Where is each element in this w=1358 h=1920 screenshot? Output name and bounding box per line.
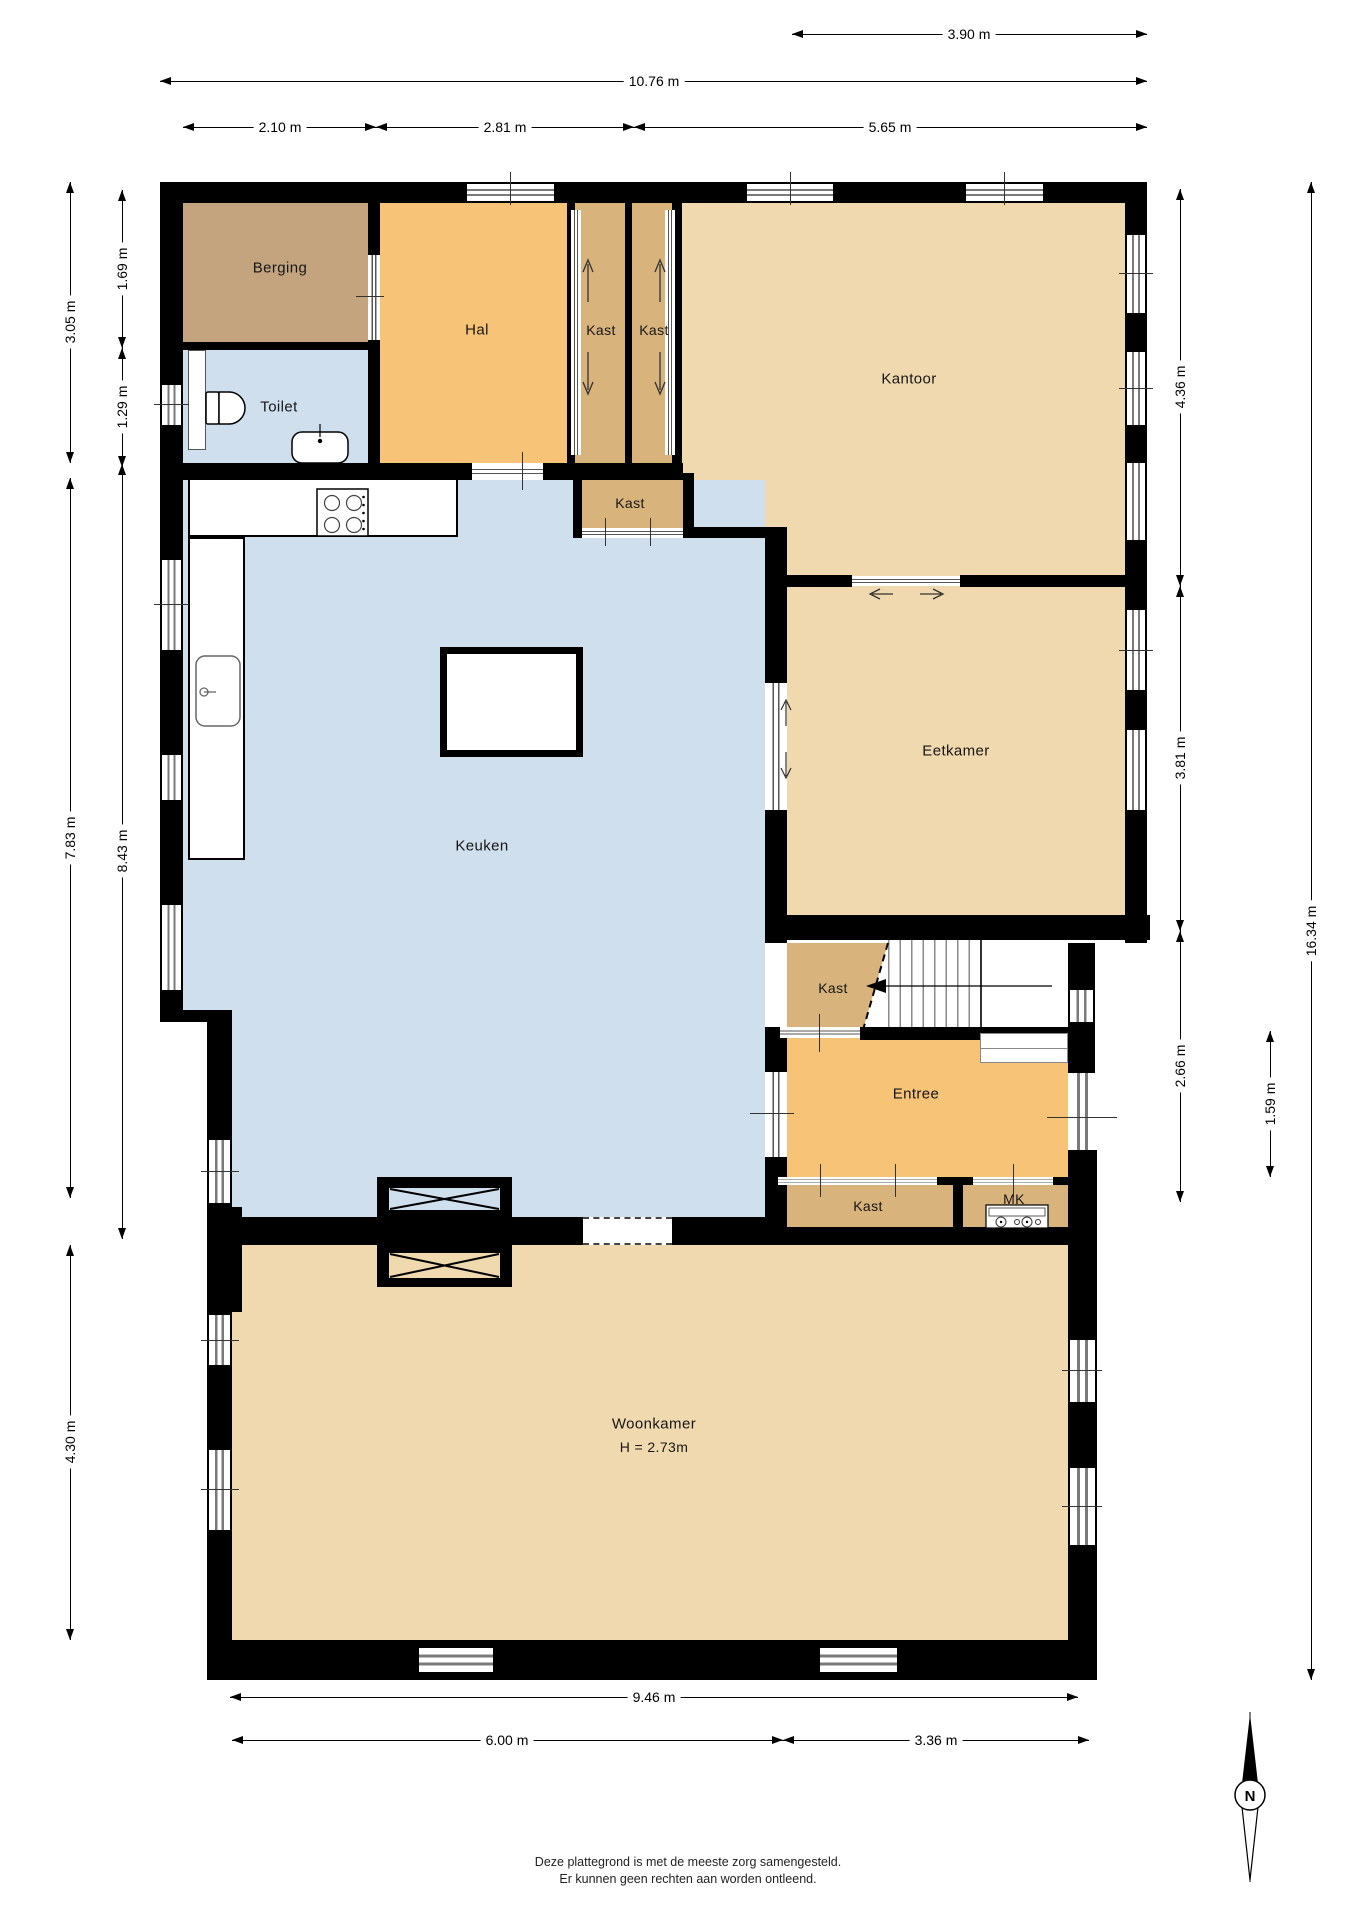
- room-label-toilet: Toilet: [260, 399, 297, 416]
- tick: [895, 1164, 896, 1197]
- wall-right-lower: [1068, 1150, 1097, 1680]
- tick: [1119, 388, 1153, 389]
- stairs-landing-edge: [980, 940, 982, 1027]
- wall: [787, 575, 852, 587]
- open-passage: [583, 1217, 672, 1245]
- window: [1127, 463, 1145, 540]
- wall: [573, 473, 582, 538]
- wall: [242, 1217, 377, 1245]
- slider-keuken-eetkamer: [767, 683, 785, 810]
- room-kantoor-fill: [682, 203, 1125, 527]
- tick: [201, 1340, 239, 1341]
- wall: [765, 527, 787, 683]
- stairs-landing: [982, 943, 1068, 1027]
- tick: [154, 604, 189, 605]
- room-label-kast2: Kast: [639, 322, 669, 338]
- kitchen-counter-top: [188, 478, 458, 537]
- dimension-label: 1.69 m: [114, 243, 130, 296]
- window: [162, 755, 181, 800]
- footer-disclaimer-line1: Deze plattegrond is met de meeste zorg s…: [535, 1855, 841, 1869]
- wall: [765, 1033, 787, 1072]
- tick: [650, 518, 651, 546]
- wall: [512, 1217, 583, 1245]
- wall: [672, 1217, 765, 1245]
- tick: [1062, 1370, 1102, 1371]
- dimension-label: 3.90 m: [943, 26, 996, 42]
- room-label-entree: Entree: [893, 1086, 940, 1103]
- tick: [605, 518, 606, 546]
- room-label-woonkamer-height: H = 2.73m: [620, 1439, 689, 1455]
- dimension-label: 5.65 m: [864, 119, 917, 135]
- dimension-label: 4.30 m: [62, 1416, 78, 1469]
- wall: [765, 915, 1150, 940]
- slider-kantoor-eetkamer: [852, 576, 960, 586]
- dimension-label: 2.66 m: [1172, 1040, 1188, 1093]
- wall-bottom: [207, 1640, 1097, 1680]
- wall: [543, 463, 683, 480]
- slider-kast1: [571, 210, 581, 455]
- wall: [183, 342, 380, 350]
- dimension-label: 16.34 m: [1303, 901, 1319, 962]
- wall: [765, 1227, 1068, 1245]
- tick: [522, 452, 523, 490]
- window: [1070, 990, 1093, 1022]
- wall: [953, 1185, 963, 1227]
- compass-icon: N: [1235, 1712, 1265, 1882]
- room-label-kast3: Kast: [615, 495, 645, 511]
- tick: [819, 1014, 820, 1052]
- wall: [368, 350, 380, 463]
- tick: [201, 1171, 239, 1172]
- wall: [625, 203, 632, 463]
- tick: [154, 404, 189, 405]
- tick: [1062, 1506, 1102, 1507]
- room-label-kast4: Kast: [853, 1198, 883, 1214]
- footer-disclaimer-line2: Er kunnen geen rechten aan worden ontlee…: [559, 1872, 816, 1886]
- entry-step-line: [981, 1048, 1067, 1049]
- tick: [790, 172, 791, 205]
- tick: [201, 1489, 239, 1490]
- kitchen-island: [440, 647, 583, 757]
- room-label-mk: MK: [1003, 1191, 1025, 1207]
- door-entree-kast: [778, 1177, 937, 1185]
- wall: [368, 203, 380, 255]
- window: [1070, 1340, 1095, 1402]
- room-label-kast1: Kast: [586, 322, 616, 338]
- window: [1127, 235, 1145, 313]
- dimension-label: 7.83 m: [62, 812, 78, 865]
- dimension-label: 3.36 m: [910, 1732, 963, 1748]
- front-door: [1070, 1073, 1095, 1150]
- window: [1127, 730, 1145, 810]
- dimension-label: 1.59 m: [1262, 1078, 1278, 1131]
- stairs-treads: [888, 940, 980, 1027]
- dimension-label: 2.81 m: [479, 119, 532, 135]
- dimension-label: 3.81 m: [1172, 732, 1188, 785]
- dimension-label: 2.10 m: [254, 119, 307, 135]
- tick: [510, 172, 511, 205]
- window: [209, 1450, 230, 1530]
- window: [162, 905, 181, 990]
- wall-left-jog: [160, 1010, 232, 1022]
- door-hal-keuken: [472, 465, 543, 478]
- dimension-label: 8.43 m: [114, 825, 130, 878]
- room-label-kantoor: Kantoor: [881, 371, 936, 388]
- tick: [1119, 273, 1153, 274]
- room-label-eetkamer: Eetkamer: [922, 743, 989, 760]
- door-berging-hal: [368, 255, 380, 340]
- window: [162, 385, 181, 425]
- toilet-door-leaf: [188, 350, 206, 450]
- tick: [820, 1164, 821, 1197]
- dimension-label: 4.36 m: [1172, 361, 1188, 414]
- room-label-hal: Hal: [465, 322, 489, 339]
- room-keuken-fill2: [232, 1012, 765, 1217]
- dimension-label: 10.76 m: [624, 73, 685, 89]
- kitchen-counter-left: [188, 537, 245, 860]
- room-label-berging: Berging: [253, 260, 308, 277]
- tick: [1119, 650, 1153, 651]
- window: [419, 1648, 493, 1672]
- compass-north-label: N: [1245, 1788, 1256, 1805]
- tick: [1047, 1117, 1117, 1118]
- floorplan: N Berging Toilet Hal Kast Kast Kast Kant…: [0, 0, 1358, 1920]
- window: [162, 560, 181, 650]
- room-label-keuken: Keuken: [455, 838, 508, 855]
- door-kast-stairs: [780, 1027, 860, 1038]
- door-kast3: [582, 528, 683, 538]
- wall-left-pier: [207, 1207, 242, 1312]
- room-label-kast-stairs: Kast: [818, 980, 848, 996]
- dimension-label: 6.00 m: [481, 1732, 534, 1748]
- dimension-label: 1.29 m: [114, 381, 130, 434]
- wall: [1053, 1177, 1068, 1185]
- tick: [356, 296, 384, 297]
- slider-keuken-entree: [767, 1072, 785, 1157]
- room-label-woonkamer: Woonkamer: [612, 1416, 696, 1433]
- wall: [937, 1177, 973, 1185]
- wall: [960, 575, 1147, 587]
- dimension-label: 9.46 m: [628, 1689, 681, 1705]
- dimension-label: 3.05 m: [62, 296, 78, 349]
- tick: [1004, 172, 1005, 205]
- tick: [750, 1113, 794, 1114]
- window: [820, 1648, 897, 1672]
